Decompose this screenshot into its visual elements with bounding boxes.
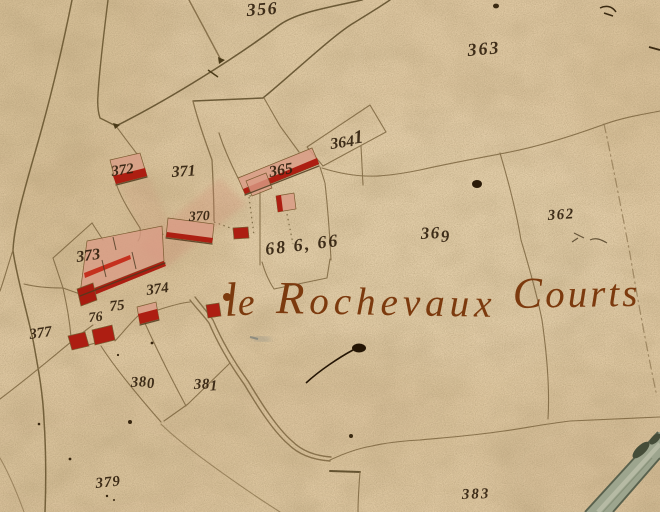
svg-text:363: 363 <box>466 37 502 60</box>
svg-text:371: 371 <box>170 162 196 181</box>
svg-text:76: 76 <box>88 310 103 326</box>
svg-text:380: 380 <box>129 374 155 393</box>
svg-text:381: 381 <box>193 376 219 395</box>
svg-text:Courts: Courts <box>512 267 640 318</box>
svg-text:383: 383 <box>461 486 491 503</box>
svg-text:75: 75 <box>109 297 126 315</box>
svg-text:373: 373 <box>74 246 101 266</box>
svg-text:372: 372 <box>109 161 135 180</box>
svg-text:377: 377 <box>27 324 53 343</box>
svg-text:370: 370 <box>187 209 210 225</box>
svg-text:356: 356 <box>245 0 279 20</box>
svg-text:362: 362 <box>546 206 575 224</box>
svg-text:374: 374 <box>144 280 170 299</box>
svg-text:379: 379 <box>94 473 122 492</box>
